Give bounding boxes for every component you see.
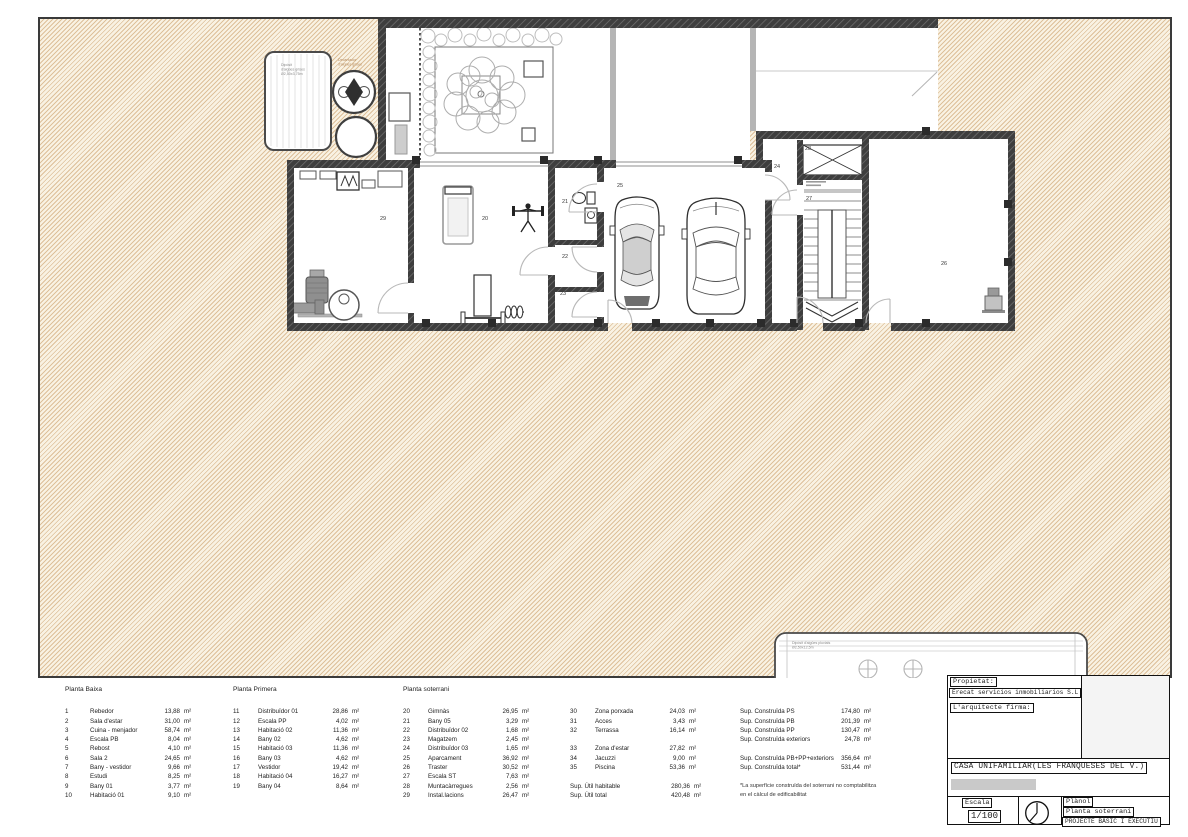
gray-wall-1	[610, 27, 616, 167]
legend-row: 30Zona porxada24,03m²	[570, 707, 710, 716]
cell-area-unit: m²	[685, 726, 705, 735]
legend-group-header	[740, 685, 880, 694]
cell-total-label: Sup. Útil total	[570, 791, 656, 800]
cell-area-value: 4,10	[146, 744, 180, 753]
legend-column-exteriors-totals: 30Zona porxada24,03m²31Acces3,43m²32Terr…	[570, 685, 710, 800]
legend-row: 23Magatzem2,45m²	[403, 735, 538, 744]
cell-area-value: 11,36	[314, 744, 348, 753]
project-phase: PROJECTE BÀSIC I EXECUTIU	[1062, 817, 1161, 827]
cell-area-unit: m²	[180, 707, 200, 716]
cell-area-value: 24,03	[651, 707, 685, 716]
cell-area-unit: m²	[518, 717, 538, 726]
legend-group-header: Planta Primera	[233, 685, 368, 694]
upper-area-b	[756, 27, 938, 131]
room-number-20: 20	[482, 216, 488, 222]
legend-group-header: Planta Baixa	[65, 685, 200, 694]
cell-room-name: Distribuïdor 03	[428, 744, 484, 753]
cell-area-unit: m²	[180, 735, 200, 744]
cell-room-name: Sala d'estar	[90, 717, 146, 726]
legend-row: Sup. Construïda exteriors24,78m²	[740, 735, 880, 744]
cell-area-unit: m²	[518, 744, 538, 753]
cell-area-value: 28,86	[314, 707, 348, 716]
room-number-26: 26	[941, 261, 947, 267]
cell-area-value: 26,47	[484, 791, 518, 800]
cell-area-value: 4,62	[314, 735, 348, 744]
cell-area-value: 1,68	[484, 726, 518, 735]
legend-row: 35Piscina53,36m²	[570, 763, 710, 772]
cell-room-name: Traster	[428, 763, 484, 772]
legend-row	[740, 772, 880, 781]
cell-room-number: 20	[403, 707, 428, 716]
legend-row: 25Aparcament36,92m²	[403, 754, 538, 763]
cell-area-unit: m²	[518, 754, 538, 763]
cell-area-unit: m²	[348, 735, 368, 744]
legend-row: 29Instal.lacions26,47m²	[403, 791, 538, 800]
cell-room-name: Magatzem	[428, 735, 484, 744]
title-block: Propietat: Erecat servicios inmobiliario…	[947, 675, 1170, 825]
legend-row: 11Distribuïdor 0128,86m²	[233, 707, 368, 716]
cell-room-number: 14	[233, 735, 258, 744]
legend-row: 14Bany 024,62m²	[233, 735, 368, 744]
legend-group-header: Planta soterrani	[403, 685, 538, 694]
cell-room-number: 25	[403, 754, 428, 763]
legend-row: 10Habitació 019,10m²	[65, 791, 200, 800]
washer-icon	[337, 172, 359, 190]
cell-room-number: 13	[233, 726, 258, 735]
room-number-25: 25	[617, 183, 623, 189]
room-number-23: 23	[560, 291, 566, 297]
cell-room-name: Jacuzzi	[595, 754, 651, 763]
cell-room-number: 7	[65, 763, 90, 772]
cell-room-number: 32	[570, 726, 595, 735]
legend-column-planta-primera: Planta Primera11Distribuïdor 0128,86m²12…	[233, 685, 368, 791]
cell-area-value: 9,00	[651, 754, 685, 763]
cell-area-value: 201,39	[826, 717, 860, 726]
cell-room-number: 24	[403, 744, 428, 753]
cell-room-name: Estudi	[90, 772, 146, 781]
cell-area-unit: m²	[518, 735, 538, 744]
cell-room-name: Distribuïdor 01	[258, 707, 314, 716]
cell-room-number: 34	[570, 754, 595, 763]
cell-room-name: Habitació 02	[258, 726, 314, 735]
legend-row: 3Cuina - menjador58,74m²	[65, 726, 200, 735]
car-2	[682, 198, 750, 314]
cell-room-number: 26	[403, 763, 428, 772]
legend-row: 6Sala 224,65m²	[65, 754, 200, 763]
cell-room-number: 6	[65, 754, 90, 763]
cell-room-name: Terrassa	[595, 726, 651, 735]
cell-room-name: Muntacàrregues	[428, 782, 484, 791]
cell-area-value: 531,44	[826, 763, 860, 772]
cell-room-name: Cuina - menjador	[90, 726, 146, 735]
legend-row	[570, 735, 710, 744]
cell-area-value: 36,92	[484, 754, 518, 763]
cell-room-number: 29	[403, 791, 428, 800]
treadmill-icon	[443, 186, 473, 244]
cell-area-value: 1,65	[484, 744, 518, 753]
cell-area-unit: m²	[348, 772, 368, 781]
room-number-24: 24	[774, 164, 780, 170]
cell-area-unit: m²	[690, 782, 710, 791]
cell-area-value: 130,47	[826, 726, 860, 735]
legend-row: Sup. Construïda PB201,39m²	[740, 717, 880, 726]
divider	[948, 758, 1169, 759]
cell-area-unit: m²	[685, 744, 705, 753]
cell-room-name: Escala PP	[258, 717, 314, 726]
cell-room-number: 30	[570, 707, 595, 716]
legend-row: 19Bany 048,64m²	[233, 782, 368, 791]
cell-room-name: Bany 05	[428, 717, 484, 726]
dumbbells-icon	[505, 306, 524, 318]
cell-total-label: Sup. Construïda PP	[740, 726, 826, 735]
cell-room-number: 33	[570, 744, 595, 753]
legend-row: Sup. Útil habitable280,36m²	[570, 782, 710, 791]
cell-area-unit: m²	[860, 707, 880, 716]
cell-area-value: 24,78	[826, 735, 860, 744]
cell-area-unit: m²	[180, 717, 200, 726]
cell-room-name: Bany - vestidor	[90, 763, 146, 772]
cell-room-number: 2	[65, 717, 90, 726]
legend-column-planta-baixa: Planta Baixa1Rebedor13,88m²2Sala d'estar…	[65, 685, 200, 800]
legend-row: 9Bany 013,77m²	[65, 782, 200, 791]
upper-area-a	[616, 27, 750, 167]
cell-room-number: 23	[403, 735, 428, 744]
cell-room-number: 27	[403, 772, 428, 781]
legend-footnote: en el càlcul de edificabilitat	[740, 791, 880, 800]
cell-area-unit: m²	[180, 754, 200, 763]
cell-area-value: 9,66	[146, 763, 180, 772]
decanter-label: Decantador d'aigües grises	[338, 58, 362, 67]
cell-room-number: 18	[233, 772, 258, 781]
legend-row: 12Escala PP4,02m²	[233, 717, 368, 726]
cell-area-value: 11,36	[314, 726, 348, 735]
cell-room-number: 4	[65, 735, 90, 744]
cell-room-name: Habitació 03	[258, 744, 314, 753]
legend-row: 2Sala d'estar31,00m²	[65, 717, 200, 726]
cell-area-value: 8,25	[146, 772, 180, 781]
legend-row: 26Traster30,52m²	[403, 763, 538, 772]
cell-room-number: 9	[65, 782, 90, 791]
legend-row: 18Habitació 0416,27m²	[233, 772, 368, 781]
planol-value: Planta soterrani	[1063, 807, 1134, 817]
cell-area-unit: m²	[685, 717, 705, 726]
legend-row: 21Bany 053,29m²	[403, 717, 538, 726]
cell-room-number: 22	[403, 726, 428, 735]
cell-room-name: Habitació 01	[90, 791, 146, 800]
legend-row: 28Muntacàrregues2,56m²	[403, 782, 538, 791]
legend-row: 24Distribuïdor 031,65m²	[403, 744, 538, 753]
cell-area-value: 4,62	[314, 754, 348, 763]
sink-icon	[585, 208, 597, 223]
cell-area-value: 16,14	[651, 726, 685, 735]
cell-area-unit: m²	[348, 707, 368, 716]
cell-room-name: Acces	[595, 717, 651, 726]
cell-room-number: 5	[65, 744, 90, 753]
room-number-29: 29	[380, 216, 386, 222]
cell-area-value: 27,82	[651, 744, 685, 753]
cell-area-value: 24,65	[146, 754, 180, 763]
cell-area-unit: m²	[518, 707, 538, 716]
legend-row: 34Jacuzzi9,00m²	[570, 754, 710, 763]
room-number-28: 28	[805, 146, 811, 152]
cell-room-number: 31	[570, 717, 595, 726]
cell-area-value: 31,00	[146, 717, 180, 726]
legend-row: 33Zona d'estar27,82m²	[570, 744, 710, 753]
cell-area-unit: m²	[518, 726, 538, 735]
cell-area-value: 58,74	[146, 726, 180, 735]
cell-area-unit: m²	[860, 763, 880, 772]
legend-row: 4Escala PB8,04m²	[65, 735, 200, 744]
car-1	[610, 197, 664, 309]
legend-column-construida: Sup. Construïda PS174,80m²Sup. Construïd…	[740, 685, 880, 800]
cell-area-unit: m²	[180, 782, 200, 791]
divider	[948, 796, 1169, 797]
cell-area-unit: m²	[180, 791, 200, 800]
cell-area-value: 16,27	[314, 772, 348, 781]
cell-area-unit: m²	[180, 763, 200, 772]
cell-room-number: 10	[65, 791, 90, 800]
cell-total-label: Sup. Construïda total*	[740, 763, 826, 772]
cell-room-name: Rebost	[90, 744, 146, 753]
legend-footnote: *La superfície construïda del soterrani …	[740, 782, 880, 791]
legend-row: 17Vestidor19,42m²	[233, 763, 368, 772]
cell-room-number: 35	[570, 763, 595, 772]
hoist-shaft	[803, 145, 862, 175]
cell-room-number: 3	[65, 726, 90, 735]
legend-row	[740, 744, 880, 753]
legend-row: 27Escala ST7,63m²	[403, 772, 538, 781]
legend-row: 7Bany - vestidor9,66m²	[65, 763, 200, 772]
cell-area-value: 2,45	[484, 735, 518, 744]
cell-area-unit: m²	[348, 782, 368, 791]
gray-wall-2	[750, 27, 756, 131]
signature-panel	[1081, 676, 1169, 758]
cell-area-unit: m²	[685, 754, 705, 763]
cell-area-unit: m²	[685, 763, 705, 772]
legend-row: 1Rebedor13,88m²	[65, 707, 200, 716]
cell-room-name: Bany 01	[90, 782, 146, 791]
cell-area-value: 420,48	[656, 791, 690, 800]
cell-room-number: 17	[233, 763, 258, 772]
cell-room-number: 19	[233, 782, 258, 791]
cell-area-unit: m²	[860, 754, 880, 763]
cell-room-number: 16	[233, 754, 258, 763]
legend-row: Sup. Construïda PB+PP+exteriors356,64m²	[740, 754, 880, 763]
cell-area-value: 13,88	[146, 707, 180, 716]
cell-room-number: 12	[233, 717, 258, 726]
cell-area-unit: m²	[180, 744, 200, 753]
legend-row: 31Acces3,43m²	[570, 717, 710, 726]
legend-row: 20Gimnàs26,95m²	[403, 707, 538, 716]
project-title: CASA UNIFAMILIAR(LES FRANQUESES DEL V.)	[951, 762, 1147, 774]
legend-row	[570, 772, 710, 781]
cell-area-value: 8,64	[314, 782, 348, 791]
cell-area-value: 7,63	[484, 772, 518, 781]
cell-area-unit: m²	[690, 791, 710, 800]
cell-room-name: Zona porxada	[595, 707, 651, 716]
cell-area-value: 8,04	[146, 735, 180, 744]
settling-tank-circle	[336, 117, 376, 157]
cell-room-number: 8	[65, 772, 90, 781]
cell-total-label: Sup. Construïda PS	[740, 707, 826, 716]
cell-room-number: 11	[233, 707, 258, 716]
drawing-sheet: Dipòsit d'aigües grises Ø2,50x3,75m Deca…	[0, 0, 1188, 837]
arquitecte-label: L'arquitecte firma:	[950, 703, 1034, 713]
cell-total-label: Sup. Construïda exteriors	[740, 735, 826, 744]
cell-area-unit: m²	[518, 782, 538, 791]
cell-room-name: Escala PB	[90, 735, 146, 744]
cell-area-unit: m²	[860, 717, 880, 726]
legend-row: Sup. Construïda total*531,44m²	[740, 763, 880, 772]
cell-room-name: Bany 04	[258, 782, 314, 791]
cell-area-value: 3,43	[651, 717, 685, 726]
cell-area-value: 280,36	[656, 782, 690, 791]
cell-room-name: Bany 03	[258, 754, 314, 763]
room-number-21: 21	[562, 199, 568, 205]
cell-room-name: Habitació 04	[258, 772, 314, 781]
cell-area-value: 19,42	[314, 763, 348, 772]
cell-area-unit: m²	[518, 772, 538, 781]
cell-area-value: 356,64	[826, 754, 860, 763]
room-number-22: 22	[562, 254, 568, 260]
cell-total-label: Sup. Construïda PB+PP+exteriors	[740, 754, 826, 763]
cell-area-value: 9,10	[146, 791, 180, 800]
cell-area-unit: m²	[348, 717, 368, 726]
legend-row: 8Estudi8,25m²	[65, 772, 200, 781]
cell-total-label: Sup. Construïda PB	[740, 717, 826, 726]
cell-area-unit: m²	[860, 735, 880, 744]
cell-area-unit: m²	[518, 763, 538, 772]
legend-row: Sup. Construïda PS174,80m²	[740, 707, 880, 716]
cell-area-unit: m²	[348, 754, 368, 763]
cell-room-name: Piscina	[595, 763, 651, 772]
cell-area-unit: m²	[180, 726, 200, 735]
cell-area-value: 30,52	[484, 763, 518, 772]
cell-room-name: Rebedor	[90, 707, 146, 716]
north-compass-icon	[1024, 800, 1050, 826]
legend-column-planta-soterrani: Planta soterrani20Gimnàs26,95m²21Bany 05…	[403, 685, 538, 800]
cell-area-value: 3,29	[484, 717, 518, 726]
escala-value: 1/100	[968, 810, 1001, 823]
redacted-bar	[951, 779, 1036, 790]
cell-area-value: 26,95	[484, 707, 518, 716]
legend-row: 16Bany 034,62m²	[233, 754, 368, 763]
cell-area-value: 53,36	[651, 763, 685, 772]
cell-room-number: 21	[403, 717, 428, 726]
legend-row: 32Terrassa16,14m²	[570, 726, 710, 735]
legend-row: 22Distribuïdor 021,68m²	[403, 726, 538, 735]
legend-row: Sup. Construïda PP130,47m²	[740, 726, 880, 735]
legend-group-header	[570, 685, 710, 694]
propietat-label: Propietat:	[950, 677, 997, 687]
cell-area-unit: m²	[685, 707, 705, 716]
legend-row: 15Habitació 0311,36m²	[233, 744, 368, 753]
cell-room-name: Bany 02	[258, 735, 314, 744]
escala-label: Escala	[962, 798, 992, 808]
cell-room-name: Gimnàs	[428, 707, 484, 716]
legend-row: 5Rebost4,10m²	[65, 744, 200, 753]
cell-room-name: Distribuïdor 02	[428, 726, 484, 735]
planol-label: Plànol	[1063, 797, 1093, 807]
cell-total-label: Sup. Útil habitable	[570, 782, 656, 791]
cell-room-name: Aparcament	[428, 754, 484, 763]
cell-area-value: 3,77	[146, 782, 180, 791]
cell-area-value: 4,02	[314, 717, 348, 726]
legend-row: Sup. Útil total420,48m²	[570, 791, 710, 800]
greywater-tank: Dipòsit d'aigües grises Ø2,50x3,75m	[265, 52, 331, 150]
cell-area-unit: m²	[860, 726, 880, 735]
cell-area-value: 2,56	[484, 782, 518, 791]
decanter-circle: Decantador d'aigües grises	[333, 58, 375, 113]
cell-room-name: Zona d'estar	[595, 744, 651, 753]
cell-area-unit: m²	[518, 791, 538, 800]
legend-row: 13Habitació 0211,36m²	[233, 726, 368, 735]
cell-room-name: Vestidor	[258, 763, 314, 772]
cell-room-number: 28	[403, 782, 428, 791]
propietat-value: Erecat servicios inmobiliarios S.L	[949, 688, 1081, 698]
cell-room-number: 15	[233, 744, 258, 753]
cell-area-value: 174,80	[826, 707, 860, 716]
divider	[1018, 796, 1019, 824]
cell-room-number: 1	[65, 707, 90, 716]
room-number-27: 27	[806, 196, 812, 202]
cell-room-name: Escala ST	[428, 772, 484, 781]
cell-area-unit: m²	[348, 726, 368, 735]
cell-area-unit: m²	[348, 744, 368, 753]
cell-room-name: Sala 2	[90, 754, 146, 763]
cell-room-name: Instal.lacions	[428, 791, 484, 800]
cell-area-unit: m²	[348, 763, 368, 772]
cell-area-unit: m²	[180, 772, 200, 781]
